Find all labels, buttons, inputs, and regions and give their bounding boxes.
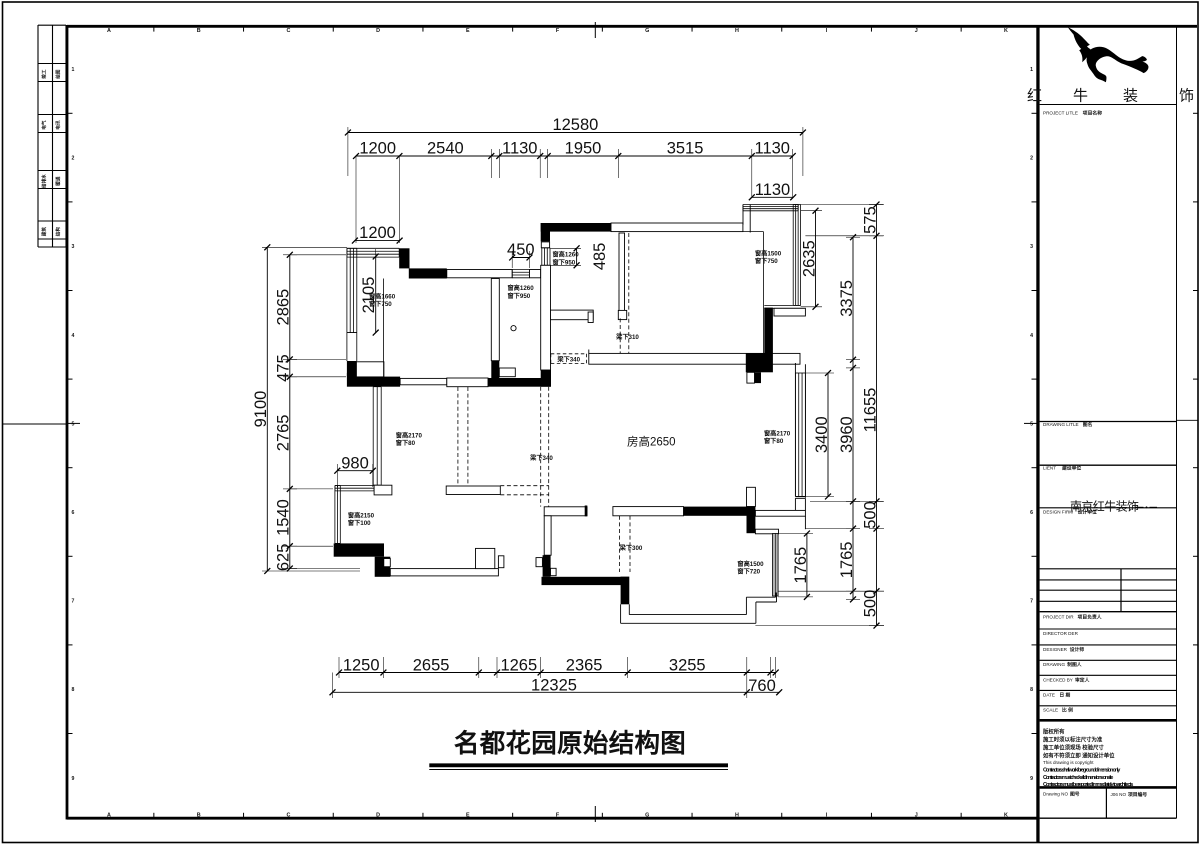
svg-text:E: E [466,812,470,818]
svg-text:485: 485 [591,243,609,271]
svg-text:2655: 2655 [413,656,450,674]
svg-text:1130: 1130 [755,181,790,199]
svg-text:窗下80: 窗下80 [764,437,784,445]
svg-text:7: 7 [1030,599,1033,605]
svg-text:结构: 结构 [55,227,62,237]
svg-text:Contractors must be reported i: Contractors must be reported immediately… [1043,782,1133,788]
svg-text:窗下750: 窗下750 [369,300,392,308]
svg-text:1200: 1200 [359,140,396,158]
svg-text:2365: 2365 [566,656,603,674]
svg-text:B: B [197,28,201,34]
svg-text:625: 625 [275,544,293,572]
svg-text:建筑: 建筑 [41,227,48,238]
svg-text:500: 500 [861,590,879,618]
svg-text:窗高1500: 窗高1500 [737,560,764,568]
svg-text:3960: 3960 [838,416,856,453]
svg-text:3255: 3255 [669,656,706,674]
svg-text:4: 4 [72,333,75,339]
svg-text:A: A [107,28,111,34]
svg-text:施工单位须现场 校验尺寸: 施工单位须现场 校验尺寸 [1043,743,1104,751]
svg-text:K: K [1004,28,1008,34]
svg-text:窗下750: 窗下750 [755,257,778,265]
svg-text:E: E [466,28,470,34]
svg-text:窗高1260: 窗高1260 [553,251,580,259]
svg-text:J: J [915,812,918,818]
svg-text:8: 8 [72,687,75,693]
svg-text:450: 450 [507,241,535,259]
svg-text:梁下340: 梁下340 [556,355,580,363]
svg-text:Contractors must check all dim: Contractors must check all dimensions on… [1043,775,1113,781]
svg-text:PROJECT DIR: PROJECT DIR [1043,614,1074,619]
svg-text:K: K [1004,812,1008,818]
svg-text:7: 7 [72,599,75,605]
svg-text:DESIGN FIRM: DESIGN FIRM [1043,510,1073,515]
svg-text:窗高2150: 窗高2150 [348,512,375,520]
svg-text:1: 1 [72,67,75,73]
svg-text:Drawing NO: Drawing NO [1043,791,1068,796]
svg-text:窗高2170: 窗高2170 [396,432,423,440]
svg-text:给排水: 给排水 [41,174,48,188]
svg-text:项目编号: 项目编号 [1128,791,1147,798]
svg-text:760: 760 [748,677,776,695]
svg-text:C: C [286,28,290,34]
svg-text:名都花园原始结构图: 名都花园原始结构图 [454,729,686,758]
svg-text:11655: 11655 [861,388,879,433]
svg-text:窗下720: 窗下720 [737,568,760,576]
svg-text:比 例: 比 例 [1062,707,1073,714]
svg-text:J: J [915,28,918,34]
svg-text:装: 装 [1123,88,1138,105]
svg-text:3400: 3400 [813,416,831,453]
svg-text:DIRECTOR DER: DIRECTOR DER [1043,631,1079,636]
svg-text:窗下80: 窗下80 [396,439,416,447]
svg-text:DESIGNER: DESIGNER [1043,647,1068,652]
svg-text:项目负责人: 项目负责人 [1078,613,1102,620]
svg-text:1540: 1540 [275,499,293,536]
svg-text:竣工: 竣工 [41,69,48,79]
svg-text:图名: 图名 [1083,421,1093,428]
svg-text:6: 6 [72,510,75,516]
svg-text:3: 3 [72,244,75,250]
svg-text:如有不符须立即 通知设计单位: 如有不符须立即 通知设计单位 [1043,751,1115,759]
svg-text:电讯: 电讯 [55,120,62,130]
svg-text:PROJECT LITLE: PROJECT LITLE [1043,111,1078,116]
svg-text:2: 2 [1030,156,1033,162]
svg-text:DRAWING LITLE: DRAWING LITLE [1043,422,1079,427]
svg-text:575: 575 [861,206,879,234]
svg-text:审定人: 审定人 [1075,676,1090,683]
svg-text:设计师: 设计师 [1070,646,1085,653]
svg-text:This drawing is copyright: This drawing is copyright [1043,760,1094,765]
svg-text:窗高1260: 窗高1260 [508,284,535,292]
svg-text:9: 9 [1030,776,1033,782]
svg-text:窗高1660: 窗高1660 [369,293,396,301]
svg-text:DRAWING: DRAWING [1043,662,1065,667]
svg-text:日 期: 日 期 [1059,692,1070,699]
svg-text:1250: 1250 [343,656,380,674]
svg-text:4: 4 [1030,333,1033,339]
svg-text:1950: 1950 [565,140,602,158]
svg-text:LIENT: LIENT [1043,466,1056,471]
svg-text:3375: 3375 [838,280,856,317]
svg-text:项目名称: 项目名称 [1083,110,1102,117]
svg-text:CHECKED BY: CHECKED BY [1043,677,1073,682]
svg-text:建设单位: 建设单位 [1061,465,1081,472]
svg-text:窗下950: 窗下950 [553,258,576,266]
svg-text:3: 3 [1030,244,1033,250]
svg-text:C: C [286,812,290,818]
svg-text:H: H [735,812,739,818]
svg-text:9: 9 [72,776,75,782]
svg-text:暖通: 暖通 [55,176,62,186]
svg-text:J06 NO: J06 NO [1111,792,1127,797]
svg-text:1200: 1200 [359,224,396,242]
svg-text:1765: 1765 [792,547,810,584]
svg-text:B: B [197,812,201,818]
svg-text:红: 红 [1027,88,1042,105]
svg-text:G: G [645,812,649,818]
svg-text:1765: 1765 [838,542,856,579]
svg-text:制图人: 制图人 [1067,661,1082,668]
svg-text:DATE: DATE [1043,693,1055,698]
svg-text:8: 8 [1030,687,1033,693]
svg-text:2765: 2765 [275,414,293,451]
svg-text:施工时须以标注尺寸为准: 施工时须以标注尺寸为准 [1043,736,1103,744]
svg-text:H: H [735,28,739,34]
svg-text:窗高2170: 窗高2170 [764,430,791,438]
svg-text:980: 980 [341,454,369,472]
svg-text:2635: 2635 [800,240,818,277]
svg-text:窗下100: 窗下100 [348,519,371,527]
svg-text:图号: 图号 [1070,790,1080,797]
svg-text:牛: 牛 [1073,88,1088,105]
svg-text:梁下310: 梁下310 [615,333,639,341]
svg-text:A: A [107,812,111,818]
svg-text:梁下340: 梁下340 [529,454,553,462]
svg-text:2: 2 [72,156,75,162]
svg-text:3515: 3515 [667,140,704,158]
svg-text:2540: 2540 [427,140,464,158]
svg-text:D: D [376,812,380,818]
svg-text:版权所有: 版权所有 [1042,727,1065,735]
svg-text:房高2650: 房高2650 [627,435,676,449]
svg-text:1130: 1130 [755,140,790,158]
svg-text:2865: 2865 [275,289,293,326]
svg-text:6: 6 [1030,510,1033,516]
svg-text:绘图: 绘图 [55,69,62,79]
svg-text:窗高1500: 窗高1500 [755,249,782,257]
svg-text:梁下300: 梁下300 [619,544,643,552]
svg-text:12580: 12580 [552,116,598,134]
svg-text:5: 5 [72,421,75,427]
svg-text:1: 1 [1030,67,1033,73]
svg-text:12325: 12325 [531,677,577,695]
svg-text:1130: 1130 [502,140,537,158]
svg-text:D: D [376,28,380,34]
svg-text:SCALE: SCALE [1043,708,1058,713]
svg-text:饰: 饰 [1179,88,1194,105]
svg-text:9100: 9100 [252,391,270,428]
svg-text:电气: 电气 [41,120,48,130]
svg-text:500: 500 [861,501,879,529]
svg-text:南京红牛装饰: 南京红牛装饰 [1070,499,1139,514]
svg-text:窗下950: 窗下950 [508,292,531,300]
svg-text:G: G [645,28,649,34]
svg-text:5: 5 [1030,421,1033,427]
svg-text:Contractors shall work foregro: Contractors shall work foreground dimens… [1043,768,1121,774]
svg-text:475: 475 [275,354,293,382]
svg-text:1265: 1265 [500,656,537,674]
